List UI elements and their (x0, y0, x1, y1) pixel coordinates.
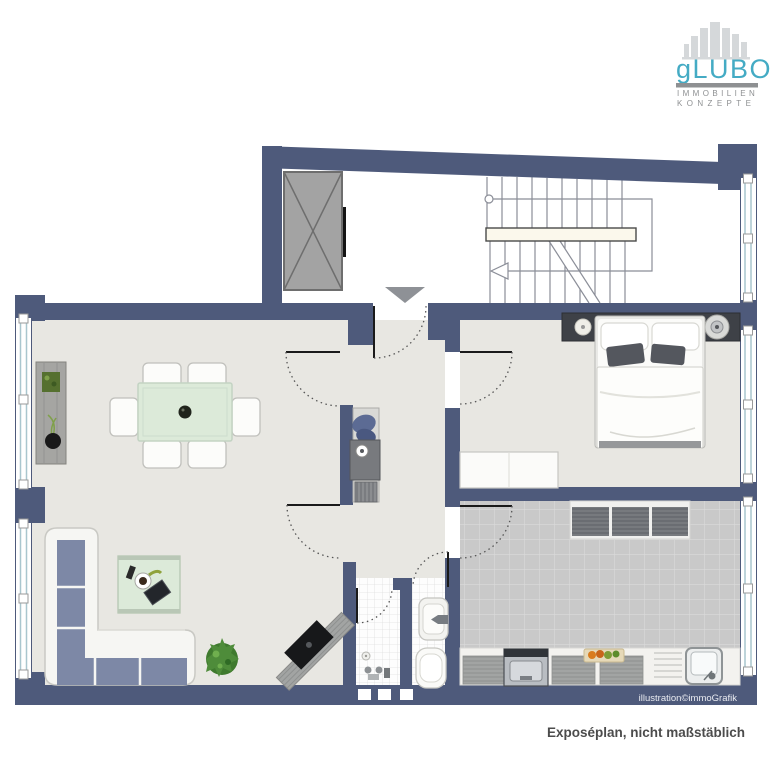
wall-bedroom-left-upper (445, 303, 460, 352)
stair-break-line (549, 241, 589, 303)
glass-block (358, 689, 371, 700)
dining-chair (232, 398, 260, 436)
logo: gLUBO IMMOBILIEN KONZEPTE (676, 22, 770, 108)
window-kitchen (741, 497, 756, 676)
floorplan-canvas: gLUBO IMMOBILIEN KONZEPTE illustration©i… (0, 0, 770, 757)
oven (504, 649, 548, 686)
wall-entrance-pier (348, 303, 373, 345)
washbasin (419, 598, 448, 640)
dining-chair (110, 398, 138, 436)
stair-landing (486, 228, 636, 241)
stair-upper-flight (487, 177, 622, 228)
kitchen-cabinet (652, 507, 688, 536)
wall-shower-wc-divider (400, 578, 412, 685)
table-bowl (179, 406, 192, 419)
base-cabinet (463, 656, 506, 684)
entrance-arrow-icon (385, 287, 425, 303)
illustration-credit: illustration©immoGrafik (639, 693, 738, 704)
logo-bar (676, 83, 758, 88)
glass-blocks (358, 689, 413, 700)
wall-left-window-pier (15, 487, 45, 523)
stair-break-band (549, 241, 600, 303)
wall-main-horizontal-left (15, 303, 348, 320)
cutting-board-vegetables (584, 649, 624, 662)
wall-stairwell-left (262, 146, 282, 320)
window-stairwell (741, 174, 756, 302)
window-living-bottom (16, 519, 31, 679)
dining-chair (188, 440, 226, 468)
wall-kitchen-left-stub (445, 501, 460, 507)
coffee-table (118, 556, 180, 613)
bed-foot-band (599, 441, 701, 448)
stair-direction-arrowhead-icon (491, 263, 508, 279)
elevator-door (343, 207, 346, 257)
logo-brand: gLUBO (676, 54, 770, 84)
shoe-rack (355, 482, 377, 502)
logo-tagline-2: KONZEPTE (677, 99, 755, 108)
scale-disclaimer: Exposéplan, nicht maßstäblich (547, 725, 745, 740)
sofa-cushion-vertical (57, 540, 85, 658)
window-living-top (16, 314, 31, 489)
double-bed (595, 316, 705, 448)
kitchen-cabinet (572, 507, 609, 536)
glass-block (400, 689, 413, 700)
wall-bedroom-kitchen (445, 487, 755, 501)
basin-faucet (438, 615, 448, 624)
floorplan-page: gLUBO IMMOBILIEN KONZEPTE illustration©i… (0, 0, 770, 757)
dining-chair (143, 440, 181, 468)
glass-block (378, 689, 391, 700)
logo-tagline-1: IMMOBILIEN (677, 89, 758, 98)
plant-pot (45, 433, 61, 449)
toilet (416, 648, 446, 688)
kitchen-cabinet (612, 507, 649, 536)
sideboard-left (36, 362, 66, 464)
coffee-cup (139, 577, 147, 585)
sofa-cushion-bottom (57, 658, 187, 685)
accent-cushion (650, 344, 686, 366)
plant-box (42, 372, 60, 392)
hallway-wardrobe (350, 408, 380, 502)
staircase (485, 177, 652, 303)
stair-direction-start (485, 195, 493, 203)
elevator (284, 172, 346, 290)
window-bedroom (741, 326, 756, 483)
duvet (597, 367, 703, 448)
